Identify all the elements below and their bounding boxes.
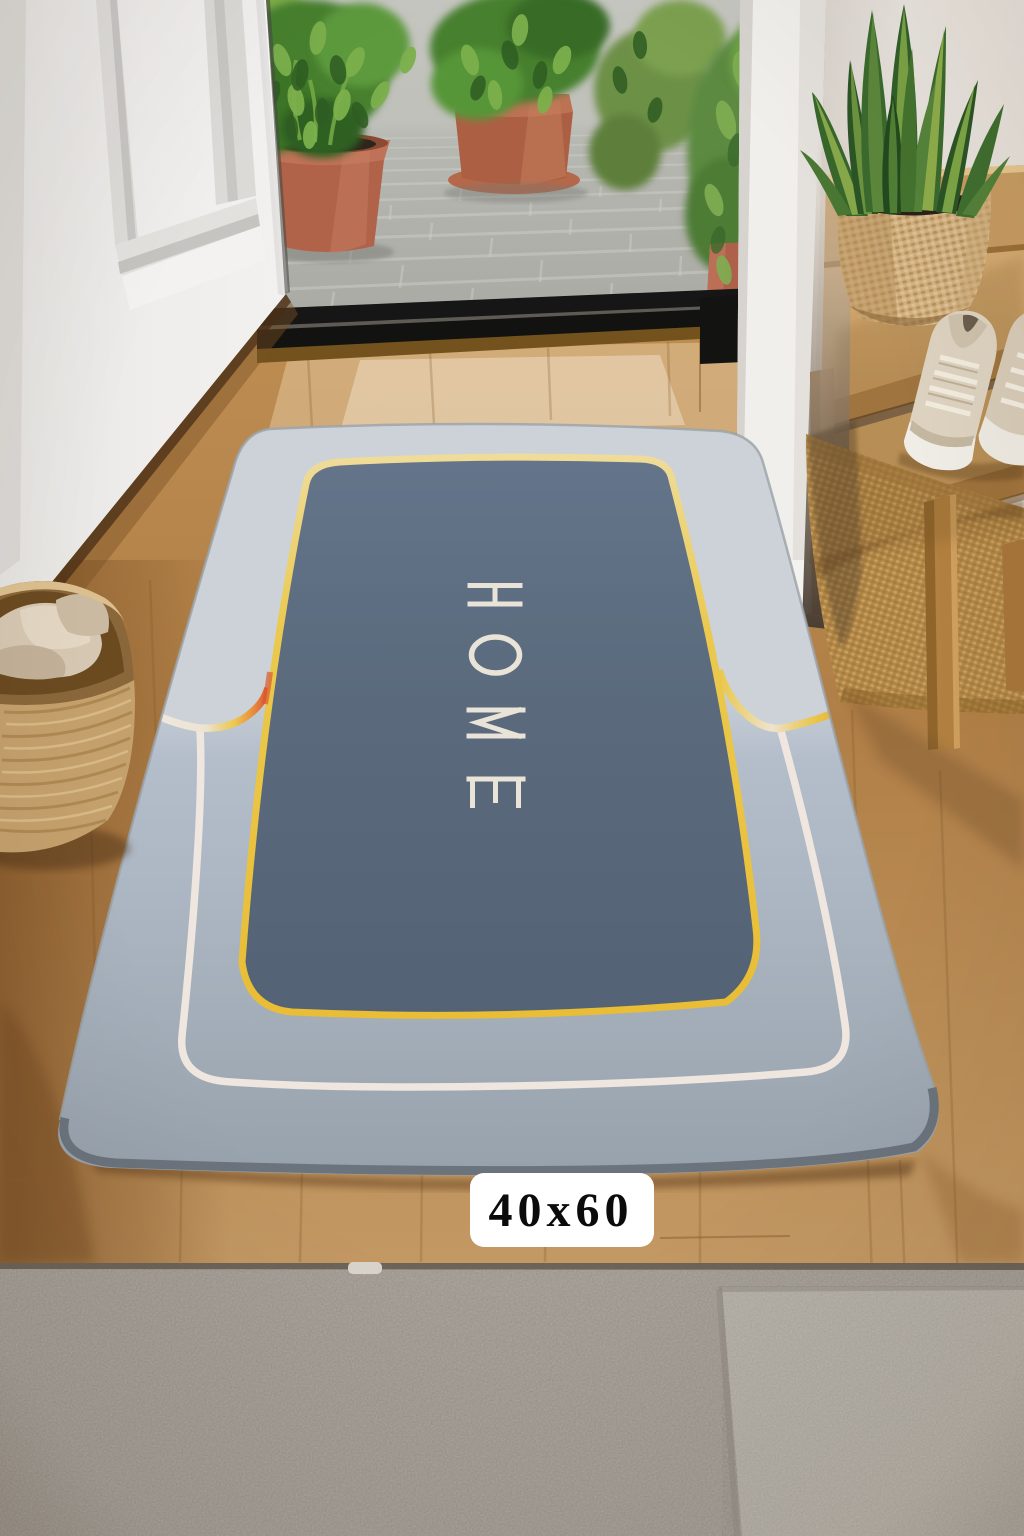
svg-text:40x60: 40x60: [489, 1184, 634, 1237]
